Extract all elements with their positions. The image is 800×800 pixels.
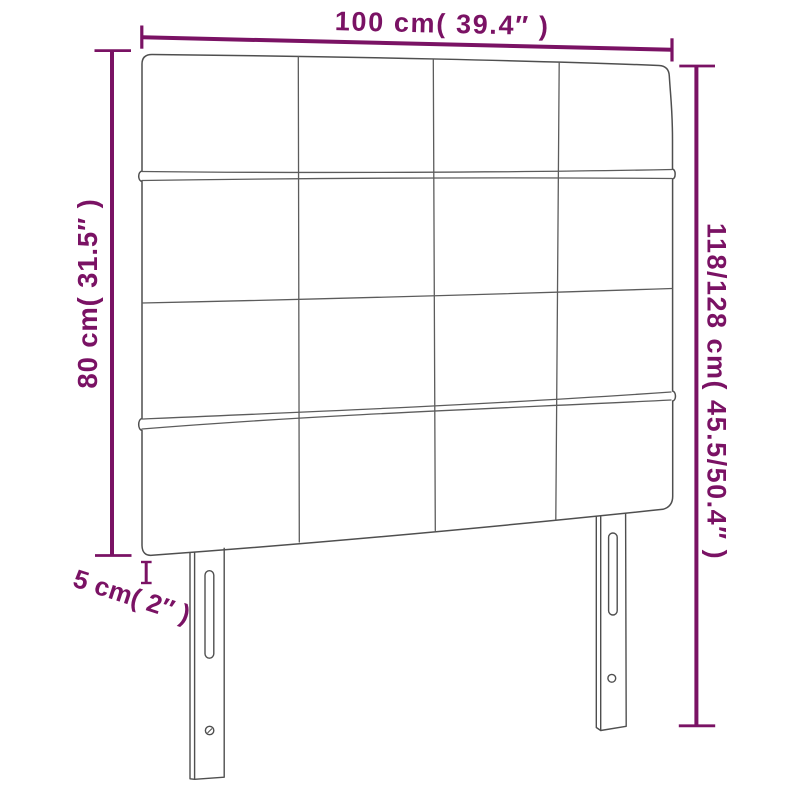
svg-text:100 cm( 39.4″ ): 100 cm( 39.4″ ): [334, 6, 549, 41]
svg-text:80 cm( 31.5″ ): 80 cm( 31.5″ ): [72, 198, 103, 388]
svg-text:118/128 cm( 45.5/50.4″ ): 118/128 cm( 45.5/50.4″ ): [702, 223, 732, 560]
